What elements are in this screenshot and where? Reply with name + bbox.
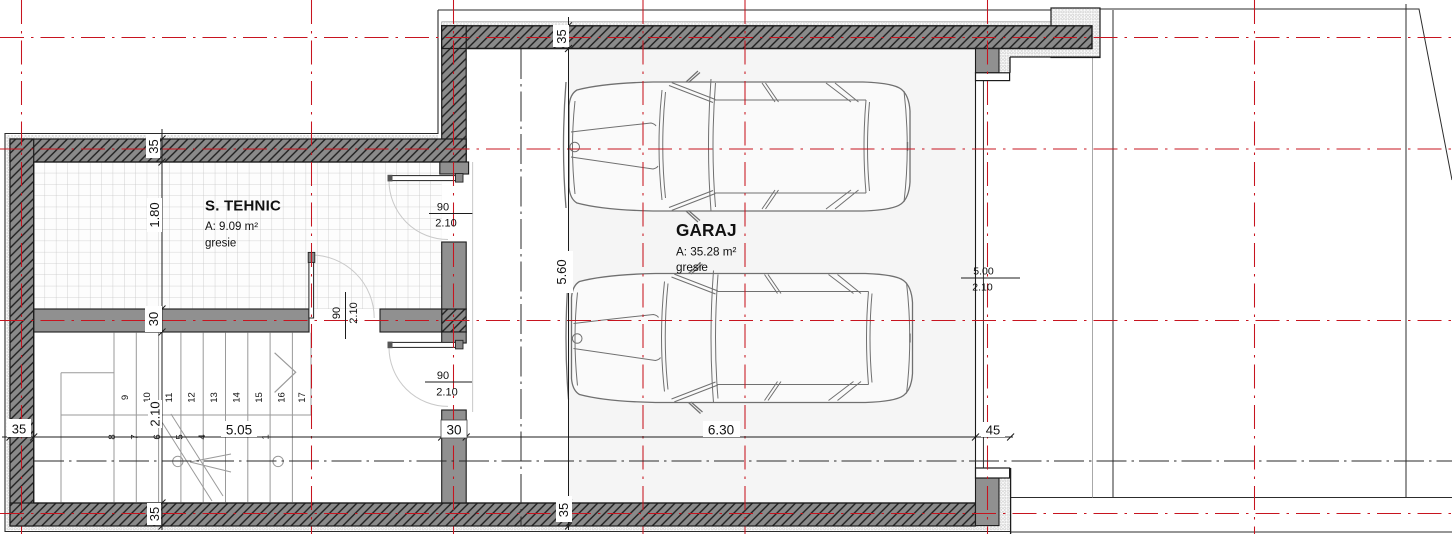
svg-text:A: 9.09 m²: A: 9.09 m² — [205, 221, 258, 233]
svg-text:17: 17 — [297, 392, 308, 403]
svg-text:30: 30 — [446, 423, 461, 438]
svg-text:35: 35 — [554, 29, 569, 43]
svg-text:30: 30 — [146, 312, 161, 326]
svg-text:1.80: 1.80 — [147, 202, 162, 227]
svg-text:35: 35 — [12, 422, 26, 437]
svg-text:5.05: 5.05 — [226, 423, 252, 438]
svg-text:9: 9 — [120, 395, 131, 400]
svg-text:35: 35 — [556, 503, 571, 517]
svg-text:A: 35.28 m²: A: 35.28 m² — [676, 246, 737, 259]
svg-text:13: 13 — [209, 392, 220, 403]
svg-text:35: 35 — [146, 139, 161, 153]
svg-text:11: 11 — [164, 393, 175, 403]
svg-text:2.10: 2.10 — [348, 302, 360, 323]
svg-text:12: 12 — [187, 392, 198, 403]
svg-text:14: 14 — [232, 392, 243, 403]
svg-text:2.10: 2.10 — [436, 387, 457, 399]
svg-text:S. TEHNIC: S. TEHNIC — [205, 198, 281, 215]
svg-text:2.10: 2.10 — [148, 401, 163, 426]
svg-text:35: 35 — [147, 507, 162, 521]
svg-text:2.10: 2.10 — [972, 282, 993, 294]
svg-text:gresie: gresie — [205, 238, 236, 250]
svg-text:5.00: 5.00 — [973, 266, 994, 278]
svg-text:15: 15 — [254, 392, 265, 403]
svg-text:90: 90 — [437, 202, 449, 214]
svg-text:90: 90 — [437, 370, 449, 382]
svg-text:45: 45 — [986, 423, 1000, 438]
svg-text:90: 90 — [331, 307, 343, 319]
svg-text:GARAJ: GARAJ — [676, 220, 737, 240]
svg-text:gresie: gresie — [676, 261, 708, 274]
svg-text:5.60: 5.60 — [554, 259, 569, 284]
svg-text:16: 16 — [277, 392, 288, 403]
svg-text:6.30: 6.30 — [708, 423, 734, 438]
svg-text:2.10: 2.10 — [435, 218, 456, 230]
